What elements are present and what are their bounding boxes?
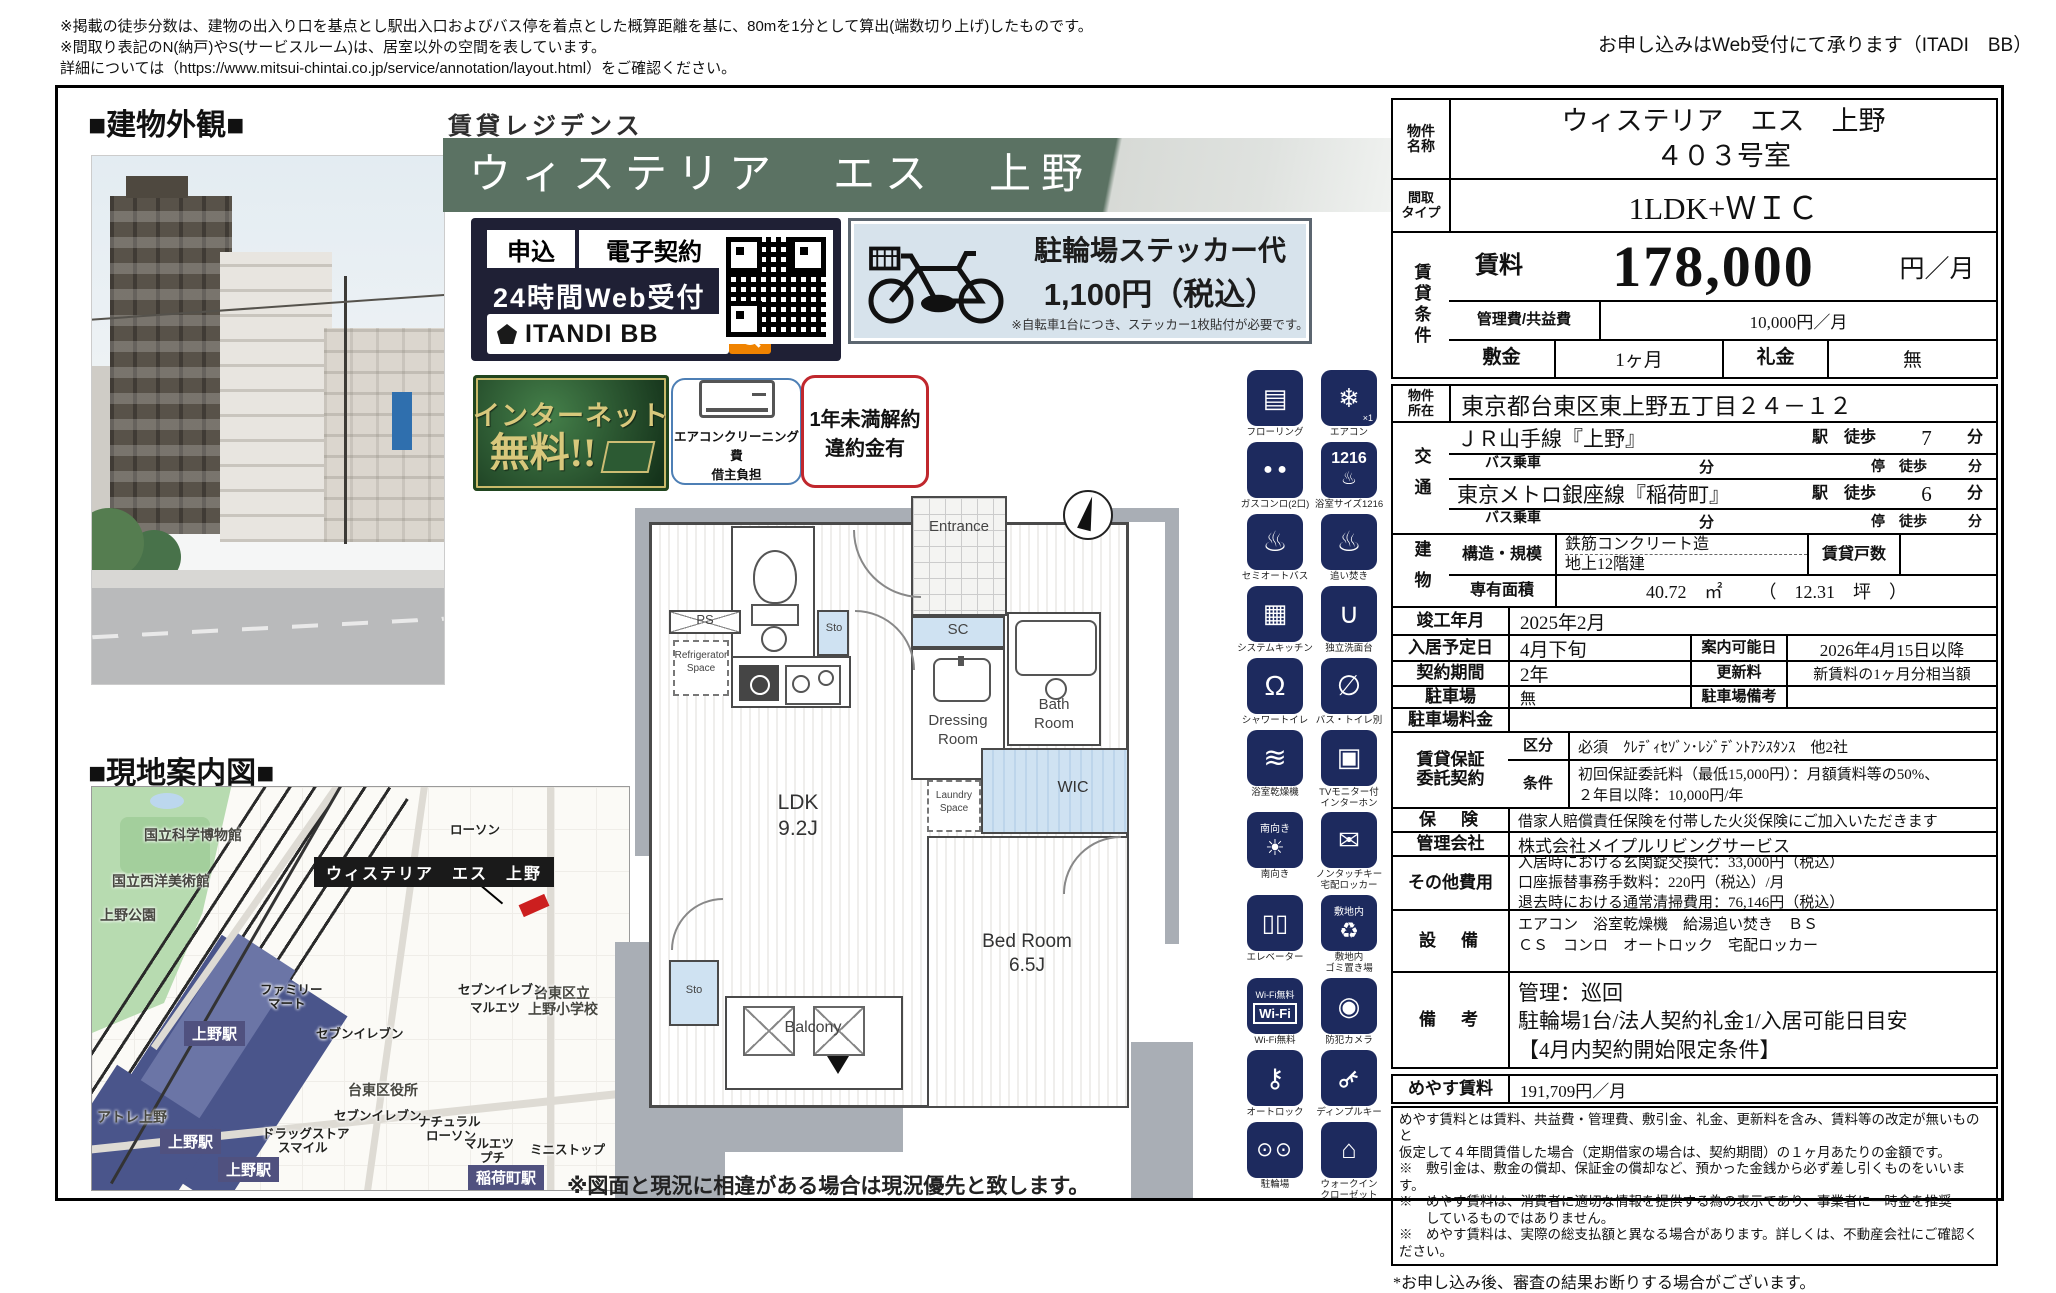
- fp-washbasin-icon: [933, 658, 991, 702]
- wic-feature: ⌂ウォークインクローゼット: [1314, 1122, 1384, 1202]
- type-label: 間取タイプ: [1393, 180, 1449, 231]
- renewal-value: 新賃料の1ヶ月分相当額: [1786, 662, 1996, 685]
- garbage-area-icon: 敷地内♻: [1321, 895, 1377, 951]
- photo-blue-sign: [392, 392, 412, 450]
- address-value: 東京都台東区東上野五丁目２４－１２: [1449, 386, 1996, 421]
- parking-fee-label: 駐車場料金: [1393, 709, 1508, 731]
- delivery-locker-feature: ✉ノンタッチキー宅配ロッカー: [1314, 812, 1384, 892]
- map-label-museum2: 国立西洋美術館: [112, 871, 210, 891]
- transport-label: 交通: [1393, 423, 1449, 533]
- cancel-badge-line2: 違約金有: [825, 432, 905, 461]
- laptop-icon: [601, 441, 656, 473]
- fp-toilet-bowl: [761, 626, 787, 652]
- wifi-free-feature: Wi-Fi無料Wi-FiWi-Fi無料: [1240, 978, 1310, 1047]
- walk-in-closet-icon: ⌂: [1321, 1122, 1377, 1178]
- map-station-ueno-3: 上野駅: [218, 1157, 279, 1182]
- parking-value: 無: [1508, 687, 1690, 707]
- qr-finder-tl: [726, 237, 762, 273]
- internet-free-badge: インターネット 無料!!: [473, 375, 669, 491]
- key-money-label: 礼金: [1722, 341, 1827, 378]
- tv-intercom-icon: ▣: [1321, 730, 1377, 786]
- fp-balcony-label: Balcony: [743, 1018, 883, 1038]
- feature-icons: ▤フローリング ❄×1エアコン ● ●ガスコンロ(2口) 1216♨浴室サイズ1…: [1240, 370, 1386, 1202]
- area-label: 専有面積: [1449, 576, 1555, 606]
- flooring-feature: ▤フローリング: [1240, 370, 1310, 439]
- aircon-unit-icon: [699, 380, 775, 418]
- insurance-label: 保 険: [1393, 809, 1508, 831]
- map-poi-drugstore-1: ドラッグストア: [262, 1127, 350, 1142]
- mgmt-company-value: 株式会社メイプルリビングサービス: [1508, 833, 1996, 855]
- property-name-banner-text: ウィステリア エス 上野: [443, 138, 1391, 212]
- map-label-museum1: 国立科学博物館: [144, 825, 242, 845]
- itandi-web-note: 24時間Web受付: [493, 276, 706, 315]
- vanity-icon: ∪: [1321, 586, 1377, 642]
- completion-value: 2025年2月: [1508, 608, 1996, 634]
- early-cancel-badge: 1年未満解約 違約金有: [801, 375, 929, 488]
- deposit-value: 1ヶ月: [1554, 341, 1722, 378]
- auto-lock-feature: ⚷オートロック: [1240, 1050, 1310, 1119]
- transport-4-line: バス乗車: [1449, 510, 1569, 533]
- rent-label: 賃料: [1449, 233, 1549, 300]
- fp-ps-left-label: PS: [669, 612, 741, 628]
- fp-sc-label: SC: [911, 621, 1005, 640]
- other-fees-value: 入居時における玄関錠交換代：33,000円（税込） 口座振替事務手数料：220円…: [1508, 857, 1996, 909]
- disclaimer-line-3: 詳細については（https://www.mitsui-chintai.co.jp…: [60, 58, 1093, 79]
- map-label-ward-office: 台東区役所: [348, 1080, 418, 1100]
- map-label-atre: アトレ上野: [97, 1107, 167, 1127]
- fp-sto-upper-label: Sto: [813, 622, 855, 636]
- separate-bath-toilet-feature: ∅バス・トイレ別: [1314, 658, 1384, 727]
- property-name-value: ウィステリア エス 上野 ４０３号室: [1449, 100, 1996, 178]
- fp-entrance-label: Entrance: [911, 518, 1007, 537]
- photo-building-left-roof: [126, 176, 188, 198]
- cancel-badge-line1: 1年未満解約: [809, 403, 920, 432]
- fp-entrance-room: [911, 496, 1007, 616]
- meyasu-note-5: しているものではありません。: [1399, 1211, 1990, 1227]
- table-section-main: 物件名称 ウィステリア エス 上野 ４０３号室 間取タイプ 1LDK+ＷＩＣ 賃…: [1391, 98, 1998, 379]
- itandi-econtract-button: 電子契約: [579, 230, 729, 268]
- semi-auto-bath-feature: ♨セミオートバス: [1240, 514, 1310, 583]
- guide-date-value: 2026年4月15日以降: [1786, 636, 1996, 660]
- conditions-label: 賃貸条件: [1393, 233, 1449, 377]
- compass-icon: [1063, 490, 1113, 540]
- garbage-area-feature: 敷地内♻敷地内ゴミ置き場: [1314, 895, 1384, 975]
- web-application-note: お申し込みはWeb受付にて承ります（ITADI BB）: [1598, 30, 2032, 57]
- aircon-icon: ❄×1: [1321, 370, 1377, 426]
- contract-value: 2年: [1508, 662, 1690, 685]
- itandi-brand-bar: ITANDI BB: [487, 314, 729, 354]
- itandi-apply-button: 申込: [487, 230, 575, 268]
- fp-toilet-icon: [753, 550, 797, 604]
- contract-label: 契約期間: [1393, 662, 1508, 685]
- parking-label: 駐車場: [1393, 687, 1508, 707]
- top-disclaimer: ※掲載の徒歩分数は、建物の出入り口を基点とし駅出入口およびバス停を着点とした概算…: [60, 16, 1093, 79]
- guide-date-label: 案内可能日: [1690, 636, 1786, 660]
- map-station-ueno-1: 上野駅: [184, 1021, 245, 1046]
- equipment-label: 設 備: [1393, 911, 1508, 971]
- fp-direction-triangle: [827, 1056, 849, 1074]
- meyasu-note-6: ※ めやす賃料は、実際の総支払額と異なる場合があります。詳しくは、不動産会社にご…: [1399, 1227, 1990, 1260]
- meyasu-label: めやす賃料: [1393, 1076, 1508, 1102]
- disclaimer-line-1: ※掲載の徒歩分数は、建物の出入り口を基点とし駅出入口およびバス停を着点とした概算…: [60, 16, 1093, 37]
- fp-note: ※図面と現況に相違がある場合は現況優先と致します。: [567, 1170, 1089, 1200]
- shower-toilet-feature: Ωシャワートイレ: [1240, 658, 1310, 727]
- map-station-ueno-2: 上野駅: [160, 1129, 221, 1154]
- guarantee-class-label: 区分: [1508, 733, 1568, 759]
- name-label: 物件名称: [1393, 100, 1449, 178]
- aircon-cleaning-badge: エアコンクリーニング費 借主負担: [671, 378, 802, 485]
- completion-label: 竣工年月: [1393, 608, 1508, 634]
- map-poi-seveneleven-1: セブンイレブン: [316, 1027, 404, 1042]
- photo-building-right: [324, 328, 444, 542]
- meyasu-note-3: ※ 敷引金は、敷金の償却、保証金の償却など、預かった金銭から必ず差し引くものをい…: [1399, 1161, 1990, 1194]
- meyasu-note-2: 仮定して４年間賃借した場合（定期借家の場合は、契約期間）の１ヶ月あたりの金額です…: [1399, 1145, 1990, 1161]
- table-section-details: 物件所在 東京都台東区東上野五丁目２４－１２ 交通 ＪＲ山手線『上野』 駅 徒歩…: [1391, 384, 1998, 1069]
- dimple-key-feature: ⚷ディンプルキー: [1314, 1050, 1384, 1119]
- floor-plan: Entrance Sto PS RefrigeratorSpace: [503, 490, 1203, 1198]
- fp-wall-right: [1165, 508, 1179, 944]
- qr-finder-tr: [790, 237, 826, 273]
- aircon-badge-line2: 借主負担: [711, 464, 761, 483]
- fp-wall-left: [635, 508, 649, 856]
- vanity-feature: ∪独立洗面台: [1314, 586, 1384, 655]
- south-facing-feature: 南向き☀南向き: [1240, 812, 1310, 892]
- map-poi-drugstore-2: スマイル: [278, 1141, 328, 1156]
- meyasu-note-4: ※ めやす賃料は、消費者に適切な情報を提供する為の表示であり、事業者に一時金を推…: [1399, 1194, 1990, 1210]
- building-photo: [91, 155, 445, 685]
- structure-value: 鉄筋コンクリート造 地上12階建: [1555, 535, 1807, 574]
- bicycle-icon: [861, 231, 1011, 331]
- fp-toilet-tank: [751, 604, 799, 626]
- fp-kitchen-counter: [731, 656, 851, 708]
- reheating-feature: ♨追い焚き: [1314, 514, 1384, 583]
- address-label: 物件所在: [1393, 386, 1449, 421]
- property-table: 物件名称 ウィステリア エス 上野 ４０３号室 間取タイプ 1LDK+ＷＩＣ 賃…: [1391, 98, 1998, 1293]
- fp-balcony: [725, 996, 903, 1090]
- bike-banner-line2: 1,100円（税込）: [1011, 269, 1309, 314]
- map-poi-lawson: ローソン: [450, 823, 500, 838]
- bike-sticker-banner: 駐輪場ステッカー代 1,100円（税込） ※自転車1台につき、ステッカー1枚貼付…: [848, 218, 1312, 344]
- security-camera-icon: ◉: [1321, 978, 1377, 1034]
- main-frame: ■建物外観■ ■現地案内図■ ウィステリア: [55, 85, 2004, 1201]
- auto-lock-icon: ⚷: [1247, 1050, 1303, 1106]
- transport-1-line: ＪＲ山手線『上野』: [1449, 423, 1789, 453]
- building-label: 建物: [1393, 535, 1449, 606]
- map-poi-familymart-2: マート: [268, 997, 306, 1012]
- bike-banner-text: 駐輪場ステッカー代 1,100円（税込） ※自転車1台につき、ステッカー1枚貼付…: [1011, 229, 1309, 333]
- deposit-label: 敷金: [1449, 341, 1554, 378]
- equipment-value: エアコン 浴室乾燥機 給湯追い焚き ＢＳ ＣＳ コンロ オートロック 宅配ロッカ…: [1508, 911, 1996, 971]
- remarks-label: 備 考: [1393, 973, 1508, 1067]
- fp-fridge-label: RefrigeratorSpace: [663, 650, 739, 675]
- internet-free-line1: インターネット: [473, 394, 669, 433]
- itandi-logo-icon: [497, 324, 517, 344]
- south-facing-icon: 南向き☀: [1247, 812, 1303, 868]
- system-kitchen-feature: ▦システムキッチン: [1240, 586, 1310, 655]
- aircon-feature: ❄×1エアコン: [1314, 370, 1384, 439]
- mgmt-fee-value: 10,000円／月: [1599, 302, 1996, 339]
- disclaimer-line-2: ※間取り表記のN(納戸)やS(サービスルーム)は、居室以外の空間を表しています。: [60, 37, 1093, 58]
- map-label-park: 上野公園: [100, 905, 156, 925]
- tv-intercom-feature: ▣TVモニター付インターホン: [1314, 730, 1384, 810]
- screening-note: *お申し込み後、審査の結果お断りする場合がございます。: [1391, 1269, 1998, 1293]
- fp-sto-lower-label: Sto: [669, 984, 719, 998]
- fp-bed-label: Bed Room6.5J: [947, 930, 1107, 978]
- fp-toilet-room: [731, 526, 815, 674]
- parking-note-label: 駐車場備考: [1690, 687, 1786, 707]
- transport-3-line: 東京メトロ銀座線『稲荷町』: [1449, 480, 1789, 508]
- insurance-value: 借家人賠償責任保険を付帯した火災保険にご加入いただきます: [1508, 809, 1996, 831]
- map-pond: [150, 793, 184, 809]
- meyasu-value: 191,709円／月: [1508, 1076, 1996, 1102]
- guarantee-cond-label: 条件: [1508, 761, 1568, 807]
- property-name-banner: ウィステリア エス 上野: [443, 138, 1391, 212]
- bicycle-parking-icon: ⊙⊙: [1247, 1122, 1303, 1178]
- security-camera-feature: ◉防犯カメラ: [1314, 978, 1384, 1047]
- transport-2-line: バス乗車: [1449, 455, 1569, 478]
- gas-stove-icon: ● ●: [1247, 442, 1303, 498]
- fp-wic-label: WIC: [1023, 778, 1123, 798]
- bath-dryer-icon: ≋: [1247, 730, 1303, 786]
- parking-fee-value: [1508, 709, 1996, 731]
- map-poi-familymart-1: ファミリー: [260, 983, 323, 998]
- qr-finder-bl: [726, 301, 762, 337]
- bike-banner-line3: ※自転車1台につき、ステッカー1枚貼付が必要です。: [1011, 314, 1309, 333]
- units-label: 賃貸戸数: [1807, 535, 1899, 574]
- area-value: 40.72 ㎡ （ 12.31 坪 ）: [1555, 576, 1996, 606]
- rent-unit: 円／月: [1878, 233, 1996, 300]
- transport-1-min: 7: [1899, 423, 1954, 453]
- bicycle-parking-feature: ⊙⊙駐輪場: [1240, 1122, 1310, 1202]
- itandi-brand-text: ITANDI BB: [525, 320, 659, 349]
- structure-label: 構造・規模: [1449, 535, 1555, 574]
- gas-stove-feature: ● ●ガスコンロ(2口): [1240, 442, 1310, 511]
- table-section-meyasu: めやす賃料 191,709円／月: [1391, 1074, 1998, 1104]
- fp-bathtub-icon: [1015, 620, 1097, 676]
- banner-kicker: 賃貸レジデンス: [448, 106, 644, 141]
- transport-3-min: 6: [1899, 480, 1954, 508]
- elevator-icon: ▯▯: [1247, 895, 1303, 951]
- layout-type-value: 1LDK+ＷＩＣ: [1449, 180, 1996, 231]
- parking-note-value: [1786, 687, 1996, 707]
- other-fees-label: その他費用: [1393, 857, 1508, 909]
- aircon-badge-line1: エアコンクリーニング費: [673, 426, 800, 464]
- rent-value: 178,000: [1549, 233, 1878, 300]
- guarantee-class-value: 必須 ｸﾚﾃﾞｨｾｿﾞﾝ･ﾚｼﾞﾃﾞﾝﾄｱｼｽﾀﾝｽ 他2社: [1568, 733, 1996, 759]
- fp-kitchen-stove: [785, 665, 841, 705]
- renewal-label: 更新料: [1690, 662, 1786, 685]
- separate-bath-toilet-icon: ∅: [1321, 658, 1377, 714]
- meyasu-notes: めやす賃料とは賃料、共益費・管理費、敷引金、礼金、更新料を含み、賃料等の改定が無…: [1391, 1106, 1998, 1266]
- fp-laundry-label: LaundrySpace: [919, 790, 989, 815]
- wifi-icon: Wi-Fi無料Wi-Fi: [1247, 978, 1303, 1034]
- guarantee-cond-value: 初回保証委託料（最低15,000円）：月額賃料等の50%、 ２年目以降：10,0…: [1568, 761, 1996, 807]
- elevator-feature: ▯▯エレベーター: [1240, 895, 1310, 975]
- photo-building-left: [110, 196, 232, 534]
- exterior-section-title: ■建物外観■: [88, 100, 244, 144]
- map-poi-nlawson-1: ナチュラル: [418, 1115, 481, 1130]
- guarantee-label: 賃貸保証委託契約: [1393, 733, 1508, 807]
- mgmt-fee-label: 管理費/共益費: [1449, 302, 1599, 339]
- fp-ground-bottomright: [1131, 1042, 1193, 1198]
- movein-label: 入居予定日: [1393, 636, 1508, 660]
- dimple-key-icon: ⚷: [1321, 1050, 1377, 1106]
- fp-kitchen-sink: [739, 665, 779, 701]
- photo-utility-pole: [344, 276, 347, 544]
- semi-auto-bath-icon: ♨: [1247, 514, 1303, 570]
- delivery-locker-icon: ✉: [1321, 812, 1377, 868]
- system-kitchen-icon: ▦: [1247, 586, 1303, 642]
- photo-sidewalk: [92, 570, 444, 590]
- fp-ldk-label: LDK9.2J: [733, 790, 863, 843]
- units-value: [1899, 535, 1996, 574]
- fp-dressing-label: DressingRoom: [911, 712, 1005, 750]
- bath-size-icon: 1216♨: [1321, 442, 1377, 498]
- flooring-icon: ▤: [1247, 370, 1303, 426]
- bike-banner-line1: 駐輪場ステッカー代: [1011, 229, 1309, 269]
- internet-free-line2: 無料!!: [490, 433, 597, 473]
- map-poi-seveneleven-3: セブンイレブン: [334, 1109, 422, 1124]
- fp-bath-label: BathRoom: [1007, 696, 1101, 734]
- map-poi-maruetsu-petit-2: プチ: [480, 1151, 505, 1166]
- shower-toilet-icon: Ω: [1247, 658, 1303, 714]
- reheating-icon: ♨: [1321, 514, 1377, 570]
- bath-dryer-feature: ≋浴室乾燥機: [1240, 730, 1310, 810]
- mgmt-company-label: 管理会社: [1393, 833, 1508, 855]
- qr-code: [719, 230, 833, 344]
- photo-building-center: [220, 252, 332, 542]
- bath-size-feature: 1216♨浴室サイズ1216: [1314, 442, 1384, 511]
- meyasu-note-1: めやす賃料とは賃料、共益費・管理費、敷引金、礼金、更新料を含み、賃料等の改定が無…: [1399, 1112, 1990, 1145]
- movein-value: 4月下旬: [1508, 636, 1690, 660]
- remarks-value: 管理：巡回 駐輪場1台/法人契約礼金1/入居可能日目安 【4月内契約開始限定条件…: [1508, 973, 1996, 1067]
- key-money-value: 無: [1827, 341, 1996, 378]
